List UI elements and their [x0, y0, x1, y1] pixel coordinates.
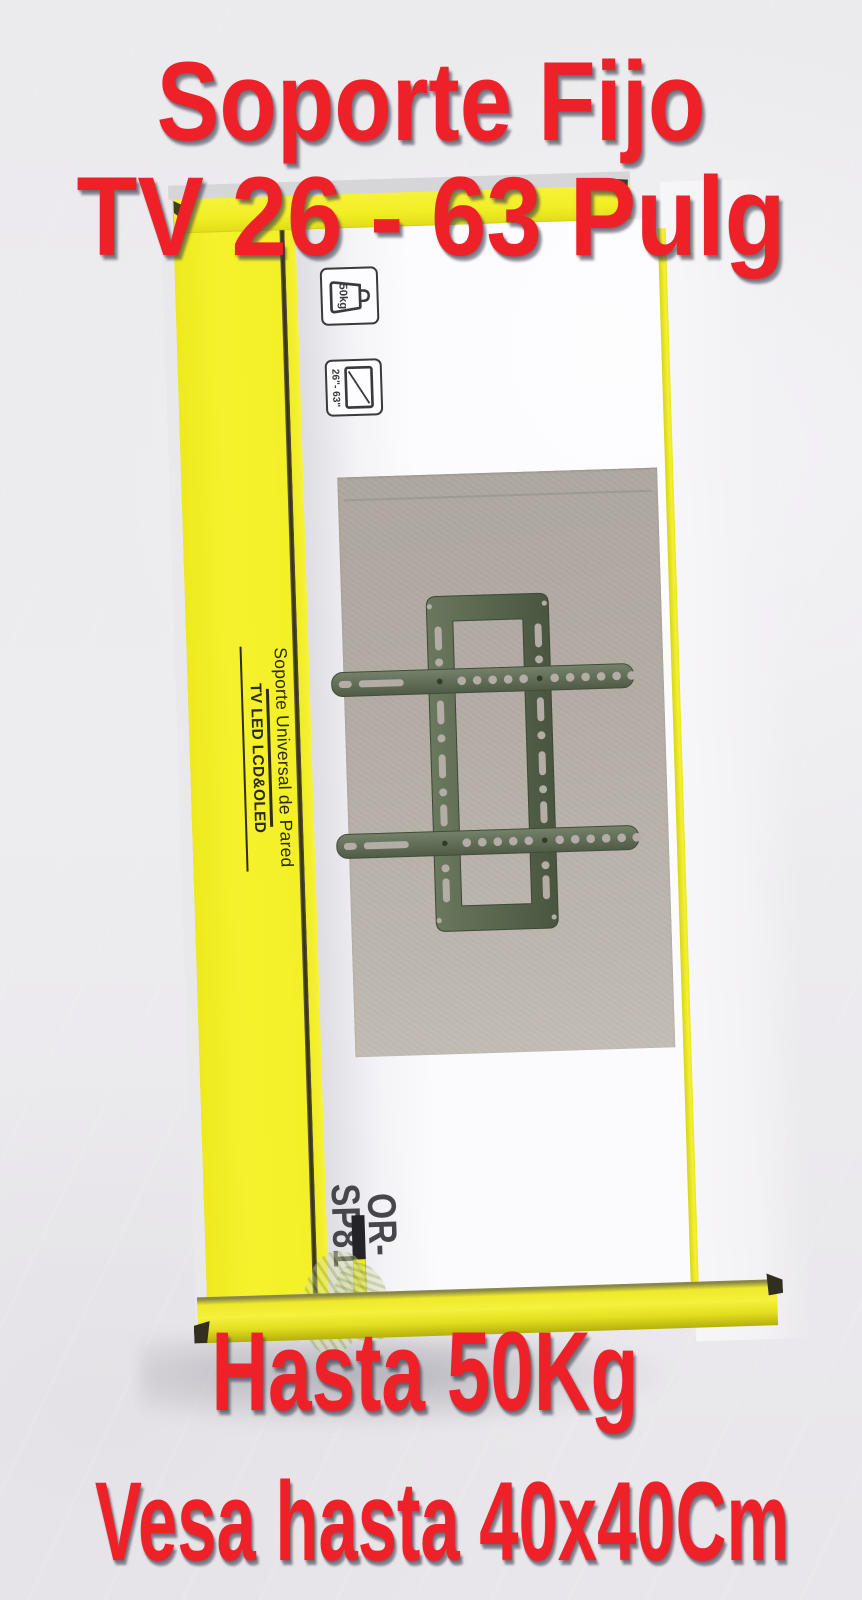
overlay-title-line2: TV 26 - 63 Pulg — [76, 161, 785, 273]
bracket-photo — [337, 468, 675, 1058]
overlay-footer-line2: Vesa hasta 40x40Cm — [95, 1466, 789, 1578]
max-weight-label: 50kg — [336, 283, 349, 309]
tv-mount-bracket-image — [321, 467, 691, 1058]
product-box: Soporte Universal de Pared TV LED LCD&OL… — [160, 170, 700, 1343]
side-band-text: Soporte Universal de Pared TV LED LCD&OL… — [242, 627, 298, 888]
overlay-footer-line1: Hasta 50Kg — [211, 1316, 638, 1428]
overlay-title-line1: Soporte Fijo — [157, 46, 706, 158]
screen-size-icon: 26"- 63" — [325, 358, 384, 417]
screen-size-label: 26"- 63" — [329, 369, 341, 408]
model-bar-black — [351, 1215, 365, 1259]
product-photo: Soporte Fijo TV 26 - 63 Pulg Hasta 50Kg … — [0, 0, 862, 1600]
